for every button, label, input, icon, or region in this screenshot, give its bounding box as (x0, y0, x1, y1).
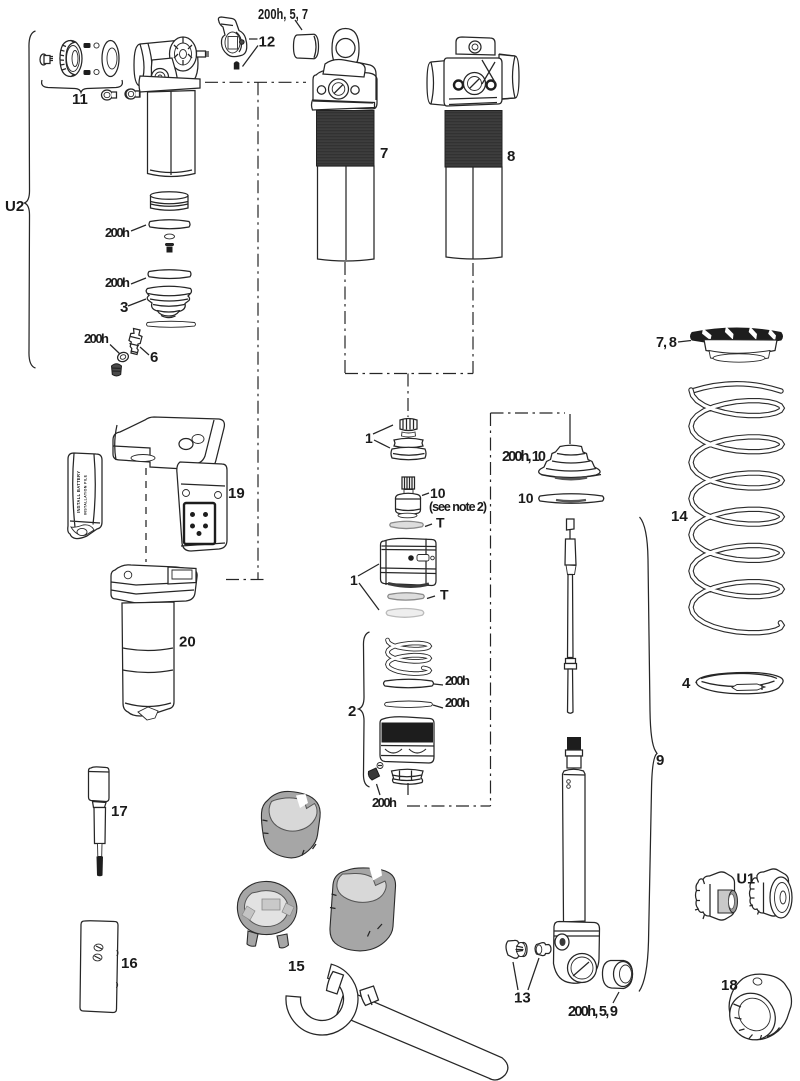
svg-text:U1: U1 (737, 872, 756, 888)
svg-text:200h, 5, 9: 200h, 5, 9 (568, 1004, 618, 1020)
svg-text:200h: 200h (372, 795, 397, 810)
svg-text:T: T (436, 515, 445, 531)
svg-text:200h: 200h (105, 225, 130, 240)
svg-text:8: 8 (507, 148, 515, 165)
svg-text:7, 8: 7, 8 (656, 335, 677, 351)
svg-text:200h: 200h (84, 331, 109, 346)
svg-text:1: 1 (350, 572, 358, 588)
svg-text:6: 6 (150, 349, 158, 366)
svg-text:10: 10 (518, 490, 534, 506)
svg-text:10: 10 (430, 485, 446, 501)
svg-text:U2: U2 (5, 198, 24, 215)
svg-text:3: 3 (120, 299, 128, 316)
svg-text:200h, 5, 7: 200h, 5, 7 (258, 7, 308, 23)
svg-text:17: 17 (111, 803, 128, 820)
svg-text:13: 13 (514, 990, 531, 1007)
svg-text:11: 11 (72, 91, 88, 108)
svg-text:16: 16 (121, 955, 138, 972)
svg-text:20: 20 (179, 634, 196, 651)
svg-text:200h, 10: 200h, 10 (502, 449, 546, 465)
svg-text:T: T (440, 587, 449, 603)
svg-text:INSTALL BATTERY: INSTALL BATTERY (76, 471, 81, 513)
svg-text:15: 15 (288, 958, 305, 975)
svg-text:200h: 200h (105, 275, 130, 290)
svg-text:19: 19 (228, 485, 245, 502)
svg-text:200h: 200h (445, 695, 470, 710)
svg-text:14: 14 (671, 508, 688, 525)
svg-text:200h: 200h (445, 673, 470, 688)
svg-text:INSTALLATION PILE: INSTALLATION PILE (84, 474, 88, 515)
svg-text:9: 9 (656, 752, 664, 769)
svg-text:2: 2 (348, 703, 356, 720)
svg-text:12: 12 (259, 34, 276, 51)
svg-text:7: 7 (380, 145, 388, 162)
svg-text:(see note 2): (see note 2) (429, 500, 487, 514)
svg-text:1: 1 (365, 430, 373, 446)
svg-text:18: 18 (721, 977, 738, 994)
svg-text:4: 4 (682, 675, 691, 692)
